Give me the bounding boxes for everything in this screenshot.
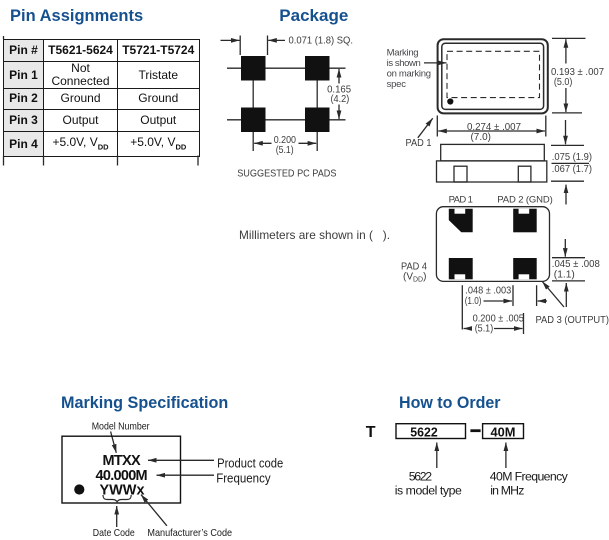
- svg-text:40.000M: 40.000M: [96, 468, 148, 484]
- svg-text:on marking: on marking: [387, 68, 431, 79]
- svg-text:.075 (1.9): .075 (1.9): [552, 151, 592, 163]
- svg-text:(1.0): (1.0): [465, 295, 482, 307]
- svg-text:Millimeters are shown in ( ): Millimeters are shown in ( ).: [239, 228, 390, 242]
- svg-text:(5.1): (5.1): [276, 144, 294, 156]
- svg-text:SUGGESTED PC PADS: SUGGESTED PC PADS: [237, 168, 336, 180]
- svg-text:(VDD): (VDD): [403, 272, 426, 284]
- svg-text:Marking: Marking: [387, 48, 419, 59]
- svg-text:T: T: [366, 424, 376, 441]
- svg-text:0.071 (1.8) SQ.: 0.071 (1.8) SQ.: [289, 35, 354, 47]
- svg-text:MTXX: MTXX: [103, 453, 142, 469]
- svg-text:5622: 5622: [410, 424, 437, 439]
- svg-text:Date Code: Date Code: [93, 527, 135, 539]
- svg-text:is model type: is model type: [395, 484, 462, 498]
- svg-text:5622: 5622: [409, 470, 433, 484]
- svg-text:PAD 2 (GND): PAD 2 (GND): [497, 195, 553, 206]
- svg-text:(5.0): (5.0): [554, 76, 573, 88]
- svg-text:Manufacturer’s Code: Manufacturer’s Code: [147, 527, 232, 539]
- svg-text:(5.1): (5.1): [475, 323, 494, 335]
- svg-text:YWWx: YWWx: [99, 482, 144, 498]
- svg-text:Product code: Product code: [217, 456, 283, 470]
- svg-text:PAD 3 (OUTPUT): PAD 3 (OUTPUT): [536, 315, 609, 326]
- svg-text:in MHz: in MHz: [490, 484, 524, 498]
- svg-text:Frequency: Frequency: [216, 472, 271, 486]
- svg-text:40M Frequency: 40M Frequency: [490, 470, 569, 484]
- svg-text:is shown: is shown: [387, 58, 421, 69]
- svg-text:PAD 1: PAD 1: [406, 138, 432, 149]
- svg-text:(7.0): (7.0): [471, 131, 491, 143]
- svg-text:(4.2): (4.2): [331, 93, 350, 105]
- svg-text:Model Number: Model Number: [92, 421, 150, 433]
- svg-text:PAD 1: PAD 1: [449, 195, 473, 206]
- svg-text:(1.1): (1.1): [554, 269, 575, 281]
- svg-text:40M: 40M: [491, 424, 516, 439]
- svg-text:spec: spec: [387, 79, 407, 90]
- svg-text:.067 (1.7): .067 (1.7): [552, 163, 592, 175]
